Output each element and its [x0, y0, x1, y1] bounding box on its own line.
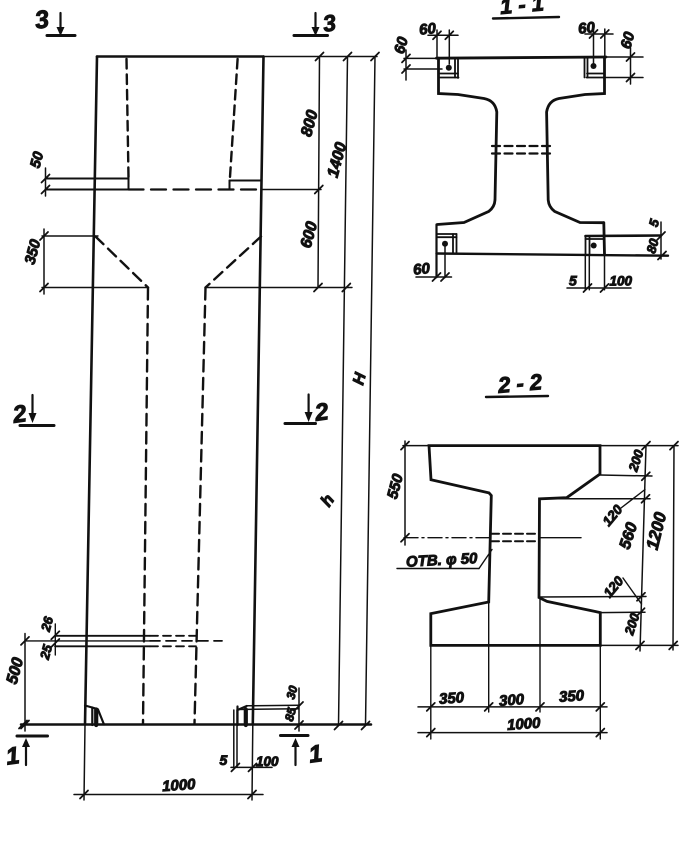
svg-text:5: 5	[220, 752, 228, 768]
svg-text:100: 100	[256, 754, 279, 769]
svg-text:2 - 2: 2 - 2	[496, 369, 544, 398]
svg-text:300: 300	[498, 691, 525, 710]
svg-text:350: 350	[558, 687, 585, 706]
svg-text:1000: 1000	[162, 776, 197, 795]
svg-text:350: 350	[438, 689, 465, 708]
svg-text:60: 60	[418, 20, 437, 39]
svg-text:1000: 1000	[506, 715, 541, 734]
svg-text:60: 60	[577, 19, 596, 38]
svg-text:100: 100	[610, 274, 633, 289]
svg-text:5: 5	[569, 273, 577, 289]
svg-text:60: 60	[412, 260, 431, 279]
